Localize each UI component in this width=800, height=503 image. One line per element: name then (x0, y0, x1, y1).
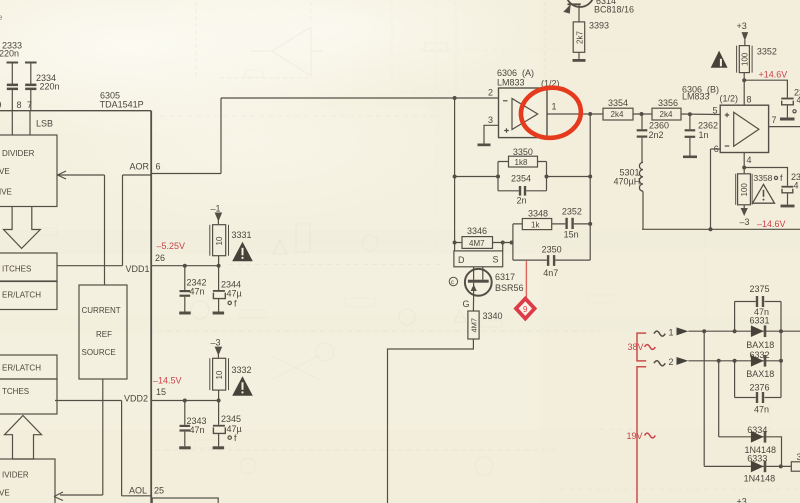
svg-text:4: 4 (797, 95, 800, 105)
svg-text:220n: 220n (0, 49, 19, 59)
svg-text:3354: 3354 (608, 98, 628, 108)
svg-text:LSB: LSB (36, 119, 53, 129)
svg-text:100: 100 (740, 52, 749, 66)
svg-text:VE: VE (0, 167, 10, 176)
svg-text:3348: 3348 (528, 208, 548, 218)
svg-text:2354: 2354 (511, 174, 531, 184)
svg-text:3332: 3332 (232, 365, 252, 375)
svg-text:BC818/16: BC818/16 (594, 4, 634, 14)
svg-text:4: 4 (747, 155, 752, 165)
svg-text:–3: –3 (211, 337, 221, 347)
svg-text:LM833: LM833 (682, 92, 710, 102)
svg-text:IVIDER: IVIDER (2, 471, 29, 480)
svg-text:2k7: 2k7 (576, 31, 585, 44)
svg-text:25: 25 (154, 486, 164, 496)
svg-text:2350: 2350 (542, 245, 562, 255)
svg-text:2n: 2n (517, 196, 527, 206)
svg-text:2: 2 (669, 357, 674, 367)
svg-text:TCHES: TCHES (2, 387, 29, 396)
svg-text:19V: 19V (627, 431, 643, 441)
svg-text:1: 1 (669, 327, 674, 337)
svg-text:ITCHES: ITCHES (2, 265, 31, 274)
svg-text:6: 6 (156, 162, 161, 172)
svg-text:47µ: 47µ (227, 289, 242, 299)
svg-text:6306 (A): 6306 (A) (497, 68, 534, 78)
svg-text:(1/2): (1/2) (720, 94, 739, 104)
svg-text:3340: 3340 (483, 311, 503, 321)
svg-text:38V: 38V (628, 342, 644, 352)
svg-text:6317: 6317 (495, 272, 515, 282)
svg-text:c: c (451, 280, 454, 286)
svg-text:220n: 220n (40, 82, 60, 92)
svg-text:BAX18: BAX18 (746, 369, 774, 379)
svg-text:VDD2: VDD2 (124, 394, 148, 404)
svg-text:2n2: 2n2 (649, 130, 664, 140)
svg-text:3: 3 (488, 115, 493, 125)
svg-text:TDA1541P: TDA1541P (100, 100, 144, 110)
svg-text:2352: 2352 (562, 207, 582, 217)
svg-text:4M7: 4M7 (469, 239, 485, 248)
svg-text:2345: 2345 (221, 414, 241, 424)
svg-text:47n: 47n (754, 405, 769, 415)
svg-text:10: 10 (215, 370, 224, 379)
svg-text:2362: 2362 (698, 121, 718, 131)
svg-text:BSR56: BSR56 (495, 283, 524, 293)
svg-text:4n7: 4n7 (543, 268, 558, 278)
svg-text:6333: 6333 (747, 453, 767, 463)
svg-text:47n: 47n (190, 287, 205, 297)
svg-text:8: 8 (747, 95, 752, 105)
svg-text:SOURCE: SOURCE (82, 348, 116, 357)
svg-text:1N4148: 1N4148 (744, 474, 776, 484)
svg-text:3: 3 (797, 452, 800, 462)
svg-text:9: 9 (523, 305, 528, 314)
svg-text:VDD1: VDD1 (126, 264, 150, 274)
svg-text:DIVIDER: DIVIDER (2, 149, 35, 158)
svg-text:BAX18: BAX18 (746, 340, 774, 350)
svg-text:–14.5V: –14.5V (153, 376, 182, 386)
svg-text:5: 5 (713, 106, 718, 116)
svg-text:3352: 3352 (757, 47, 777, 57)
svg-text:3358: 3358 (754, 173, 773, 183)
svg-text:+14.6V: +14.6V (759, 70, 788, 80)
svg-text:+3: +3 (737, 21, 747, 31)
svg-text:–3: –3 (740, 217, 750, 227)
svg-text:LM833: LM833 (497, 78, 525, 88)
svg-text:6: 6 (714, 144, 719, 154)
svg-text:IVE: IVE (0, 188, 12, 197)
svg-text:2: 2 (488, 88, 493, 98)
svg-text:15n: 15n (564, 230, 579, 240)
svg-text:VE: VE (0, 489, 10, 498)
svg-text:6332: 6332 (750, 350, 770, 360)
svg-text:3331: 3331 (232, 230, 252, 240)
svg-text:1: 1 (552, 102, 557, 112)
svg-text:–5.25V: –5.25V (157, 241, 186, 251)
svg-text:AOR: AOR (130, 162, 150, 172)
svg-text:26: 26 (155, 253, 165, 263)
svg-text:4: 4 (794, 181, 799, 191)
svg-text:–14.6V: –14.6V (757, 219, 786, 229)
svg-text:6331: 6331 (750, 316, 770, 326)
svg-text:1k: 1k (531, 220, 540, 229)
svg-text:470µH: 470µH (614, 176, 641, 186)
svg-text:2376: 2376 (750, 383, 770, 393)
svg-text:CURRENT: CURRENT (82, 306, 121, 315)
svg-text:REF: REF (96, 330, 112, 339)
svg-text:–1: –1 (211, 204, 221, 214)
svg-text:S: S (493, 254, 499, 264)
svg-text:9: 9 (0, 100, 2, 110)
svg-text:+3: +3 (737, 497, 747, 503)
svg-text:100: 100 (740, 183, 749, 197)
svg-text:47n: 47n (190, 425, 205, 435)
svg-text:3350: 3350 (513, 147, 533, 157)
svg-text:AOL: AOL (129, 486, 147, 496)
svg-text:7: 7 (772, 115, 777, 125)
svg-text:3356: 3356 (658, 98, 678, 108)
svg-text:G: G (463, 299, 470, 309)
svg-text:2k4: 2k4 (660, 110, 673, 119)
svg-text:7: 7 (27, 100, 32, 110)
svg-text:ER/LATCH: ER/LATCH (2, 291, 41, 300)
svg-text:1k8: 1k8 (515, 158, 528, 167)
svg-text:2k4: 2k4 (611, 110, 624, 119)
svg-text:1n: 1n (699, 130, 709, 140)
svg-text:10: 10 (215, 236, 224, 245)
svg-text:2375: 2375 (750, 284, 770, 294)
svg-text:D: D (458, 255, 465, 265)
svg-text:8: 8 (17, 100, 22, 110)
svg-text:4M7: 4M7 (469, 318, 478, 333)
svg-text:ER/LATCH: ER/LATCH (2, 364, 41, 373)
svg-text:3346: 3346 (467, 226, 487, 236)
svg-text:15: 15 (156, 387, 166, 397)
svg-text:6334: 6334 (747, 425, 767, 435)
svg-text:3393: 3393 (589, 20, 609, 30)
